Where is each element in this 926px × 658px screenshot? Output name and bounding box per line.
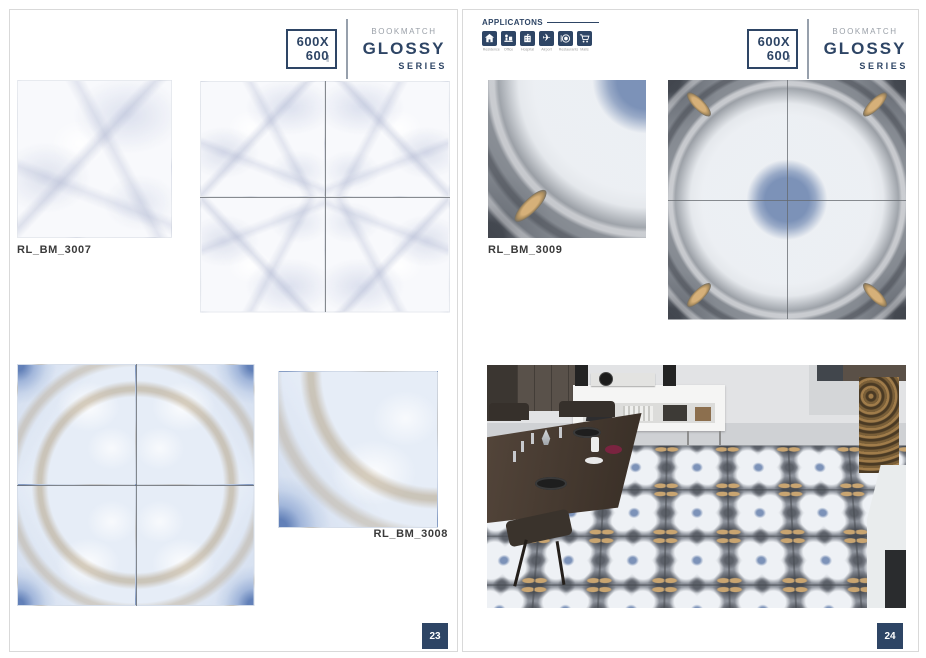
gold-vein-accent (859, 89, 889, 119)
glass (513, 451, 516, 462)
berry-bowl (605, 445, 622, 454)
header-divider (807, 19, 809, 79)
series-name: GLOSSY (357, 39, 451, 59)
page-number: 23 (422, 623, 448, 649)
console-leg (719, 431, 721, 445)
page-number: 24 (877, 623, 903, 649)
console-leg (687, 431, 689, 445)
series-sub: SERIES (357, 61, 451, 71)
grout-line (668, 200, 906, 201)
hospital-icon (522, 33, 533, 44)
plate (585, 457, 603, 464)
application-label: Residence (483, 47, 497, 52)
gold-vein-accent (684, 279, 714, 309)
vase (591, 437, 599, 452)
speaker (575, 365, 588, 386)
applications-title: APPLICATONS (482, 18, 543, 27)
tile-code-label: RL_BM_3007 (17, 244, 91, 256)
collection-name: BOOKMATCH (357, 27, 451, 36)
series-header: 600X 600 MM BOOKMATCH GLOSSY SERIES (747, 18, 912, 80)
application-label: Office (502, 47, 516, 52)
tile-swatch-rl-bm-3008 (278, 371, 438, 528)
tile-code-label: RL_BM_3008 (374, 528, 448, 540)
header-divider (346, 19, 348, 79)
tile-quadrant (325, 197, 450, 313)
tile-quadrant (200, 81, 325, 197)
series-sub: SERIES (818, 61, 912, 71)
tile-quadrant (668, 200, 787, 320)
size-top: 600X (297, 35, 329, 49)
application-label: Malls (578, 47, 592, 52)
applications-rule (547, 22, 599, 23)
applications-strip: APPLICATONS Residence Office Hospital (482, 18, 612, 52)
dining-chair (559, 401, 615, 417)
bookmatch-panel-rl-bm-3008 (17, 364, 254, 606)
books (695, 407, 711, 421)
airplane-icon: ✈ (542, 34, 550, 44)
gold-vein-accent (859, 279, 889, 309)
catalog-page-left: 600X 600 MM BOOKMATCH GLOSSY SERIES RL_B… (9, 9, 458, 652)
application-label: Airport (540, 47, 554, 52)
room-scene-render (487, 365, 906, 608)
application-airport: ✈ Airport (539, 31, 554, 52)
tile-size-box: 600X 600 MM (747, 29, 798, 69)
tile-quadrant (787, 80, 906, 200)
size-top: 600X (758, 35, 790, 49)
record-sleeves (663, 405, 687, 421)
tile-swatch-rl-bm-3007 (17, 80, 172, 238)
firewood-stack (859, 377, 899, 473)
gold-vein-accent (510, 186, 550, 226)
application-restaurants: Restaurants (558, 31, 573, 52)
glass (521, 441, 524, 452)
application-label: Restaurants (559, 47, 573, 52)
application-office: Office (501, 31, 516, 52)
tile-quadrant (17, 485, 136, 606)
tile-quadrant (787, 200, 906, 320)
grout-line (17, 485, 254, 486)
vinyl-record (599, 372, 613, 386)
series-header: 600X 600 MM BOOKMATCH GLOSSY SERIES (286, 18, 451, 80)
grout-line (200, 197, 450, 198)
collection-name: BOOKMATCH (818, 27, 912, 36)
size-unit: MM (321, 55, 335, 62)
fireplace-hearth (885, 550, 906, 608)
bookmatch-panel-rl-bm-3007 (200, 81, 450, 312)
application-hospital: Hospital (520, 31, 535, 52)
tile-quadrant (200, 197, 325, 313)
glass (531, 433, 534, 444)
restaurant-icon (560, 33, 571, 44)
application-label: Hospital (521, 47, 535, 52)
tile-swatch-rl-bm-3009 (488, 80, 646, 238)
application-malls: Malls (577, 31, 592, 52)
application-residence: Residence (482, 31, 497, 52)
tile-quadrant (17, 364, 136, 485)
tile-quadrant (668, 80, 787, 200)
plate (535, 477, 567, 490)
series-name: GLOSSY (818, 39, 912, 59)
tile-quadrant (325, 81, 450, 197)
bookmatch-panel-rl-bm-3009 (668, 80, 906, 319)
tile-quadrant (136, 485, 255, 606)
catalog-page-right: APPLICATONS Residence Office Hospital (462, 9, 919, 652)
dining-chair (489, 403, 529, 420)
glass (559, 427, 562, 438)
tile-quadrant (136, 364, 255, 485)
tile-size-box: 600X 600 MM (286, 29, 337, 69)
size-unit: MM (782, 55, 796, 62)
house-icon (484, 33, 495, 44)
speaker (663, 365, 676, 386)
gold-vein-accent (684, 89, 714, 119)
cart-icon (579, 33, 590, 44)
tile-code-label: RL_BM_3009 (488, 244, 562, 256)
office-icon (503, 33, 514, 44)
